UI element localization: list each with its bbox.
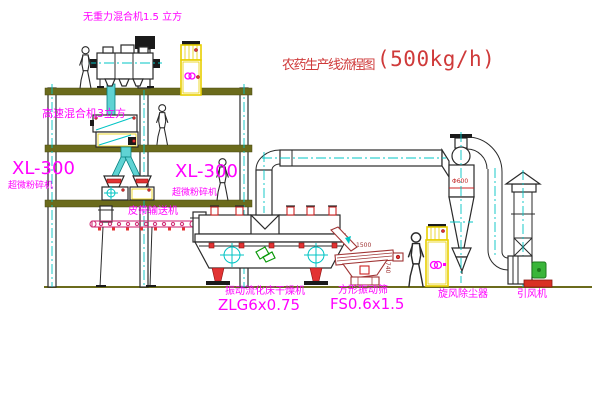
label-gravity-mixer: 无重力混合机1.5 立方 — [83, 13, 182, 24]
control-cabinet-right — [426, 224, 448, 286]
label-mill-mid-model: XL-300 — [175, 163, 238, 182]
cad-flow-diagram: 农药生产线流程图 (500kg/h) 无重力混合机1.5 立方 高速混合机3立方… — [0, 0, 600, 403]
dim-sieve-length: 1500 — [356, 242, 371, 249]
label-fan: 引风机 — [517, 290, 547, 301]
dim-cyclone-diameter: Φ600 — [452, 178, 468, 185]
label-mill-left-model: XL-300 — [12, 160, 75, 179]
worker-figure — [409, 233, 424, 287]
label-dryer-model: ZLG6x0.75 — [218, 298, 300, 314]
label-mill-left-name: 超微粉碎机 — [8, 182, 53, 191]
cyclone-drawing — [449, 132, 474, 283]
control-cabinet-top — [181, 41, 201, 95]
label-cyclone: 旋风除尘器 — [438, 290, 488, 301]
exhaust-duct-drawing — [256, 150, 449, 215]
title-text: 农药生产线流程图 — [282, 54, 374, 73]
dim-sieve-height: 740 — [384, 262, 391, 273]
label-belt-conveyor: 皮带输送机 — [128, 207, 178, 218]
worker-figure — [157, 105, 168, 145]
title-capacity: (500kg/h) — [377, 47, 495, 71]
label-high-speed-mixer: 高速混合机3立方 — [42, 108, 126, 120]
fluid-bed-dryer-drawing — [190, 206, 345, 285]
diagram-title: 农药生产线流程图 (500kg/h) — [282, 50, 495, 73]
label-mill-mid-name: 超微粉碎机 — [172, 189, 217, 198]
worker-figure — [80, 47, 92, 88]
fan-drawing — [508, 256, 552, 287]
sieve-drawing — [331, 227, 403, 285]
label-sieve-model: FS0.6x1.5 — [330, 297, 404, 313]
